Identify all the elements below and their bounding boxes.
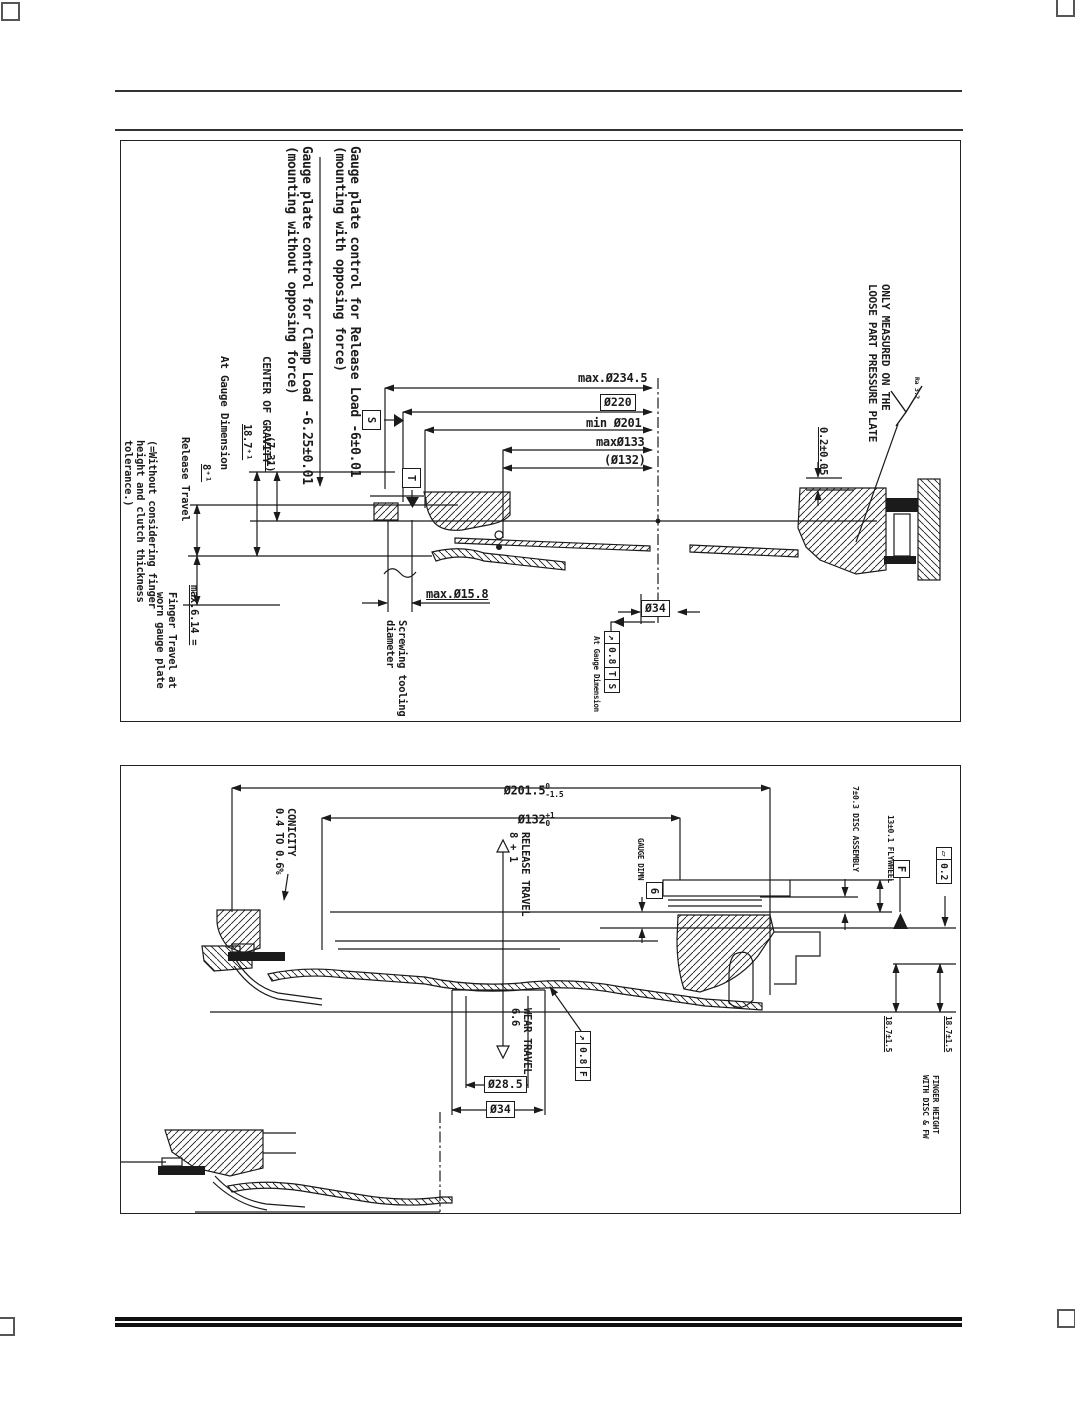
fcf-runout-bottom: ↗ 0.8 F xyxy=(575,1032,591,1081)
label-wear-travel: WEAR TRAVEL 6.6 xyxy=(509,1008,533,1074)
label-release-travel: Release Travel xyxy=(179,437,191,521)
datum-f-label: F xyxy=(895,866,907,872)
note-release-load: Gauge plate control for Release Load -6±… xyxy=(332,146,361,477)
dim-cog-value: (7.31) xyxy=(264,436,276,472)
dim-finger-max: max.6.14 = xyxy=(188,585,200,645)
dim-finger-height-b: 18.7±1.5 xyxy=(944,1016,954,1052)
datum-t-label: T xyxy=(405,475,417,481)
datum-f-box: F xyxy=(893,860,910,878)
dim-step-tolerance: 0.2±0.05 xyxy=(817,427,829,475)
fcf-bottom-datum: F xyxy=(575,1067,591,1081)
gauge-value: 6 xyxy=(648,887,660,893)
document-page: Gauge plate control for Release Load -6±… xyxy=(0,0,1075,1422)
dim-dia-234: max.Ø234.5 xyxy=(578,371,647,385)
dim-dia-133: maxØ133 xyxy=(596,435,644,449)
note-clamp-load: Gauge plate control for Clamp Load -6.25… xyxy=(284,146,313,485)
dim-finger-height-a: 18.7±1.5 xyxy=(884,1016,894,1052)
dim-dia-132-value: Ø132 xyxy=(518,813,546,827)
dim-disc-assembly: 7±0.3 DISC ASSEMBLY xyxy=(851,786,861,872)
label-release-travel-b: RELEASE TRAVEL 8 + 1 xyxy=(507,832,531,916)
gauge-value-box: 6 xyxy=(646,882,663,899)
fcf-bottom-tolerance: 0.8 xyxy=(575,1043,591,1068)
dim-dia-132: (Ø132) xyxy=(604,453,646,467)
note-finger-travel: Finger Travel at worn gauge plate xyxy=(154,592,178,688)
fcf-flatness: ▱ 0.2 xyxy=(936,848,952,884)
dim-dia-15-8: max.Ø15.8 xyxy=(426,587,488,601)
dim-dia-201-5-value: Ø201.5 xyxy=(504,784,546,798)
dim-dia-28-5-box: Ø28.5 xyxy=(484,1076,527,1093)
dim-dia-132-lower: 0 xyxy=(545,820,554,828)
flatness-tolerance: 0.2 xyxy=(936,859,952,884)
dim-gauge-height: 18.7⁺¹ xyxy=(241,424,253,460)
note-screwing-tooling: Screwing tooling diameter xyxy=(384,620,408,716)
fcf-top-note: At Gauge Dimension xyxy=(592,636,601,712)
note-only-measured: ONLY MEASURED ON THE LOOSE PART PRESSURE… xyxy=(866,284,891,442)
label-at-gauge-dimension: At Gauge Dimension xyxy=(218,356,231,470)
fcf-runout-top: ↗ 0.8 T S xyxy=(604,632,620,693)
dim-dia-201: min Ø201 xyxy=(586,416,641,430)
datum-s-box: S xyxy=(362,410,381,430)
note-finger-height: FINGER HEIGHT WITH DISC & FW xyxy=(921,1075,940,1138)
label-gauge-dimn: GAUGE DIMN xyxy=(636,838,645,880)
dim-dia-220-box: Ø220 xyxy=(600,394,636,411)
dim-dia-34-box: Ø34 xyxy=(641,600,670,617)
roughness-value: Ra 3.2 xyxy=(913,377,921,399)
fcf-top-tolerance: 0.8 xyxy=(604,643,620,668)
note-conicity: CONICITY 0.4 TO 0.6% xyxy=(273,808,297,874)
datum-t-box: T xyxy=(402,468,421,488)
fcf-top-datum-2: S xyxy=(604,679,620,693)
datum-s-label: S xyxy=(365,417,377,423)
dim-release-value: 8⁺¹ xyxy=(200,464,212,482)
note-without-considering: (=Without considering finger height and … xyxy=(122,440,158,609)
dim-dia-34-bottom-box: Ø34 xyxy=(486,1101,515,1118)
drawing-linework xyxy=(0,0,1075,1422)
